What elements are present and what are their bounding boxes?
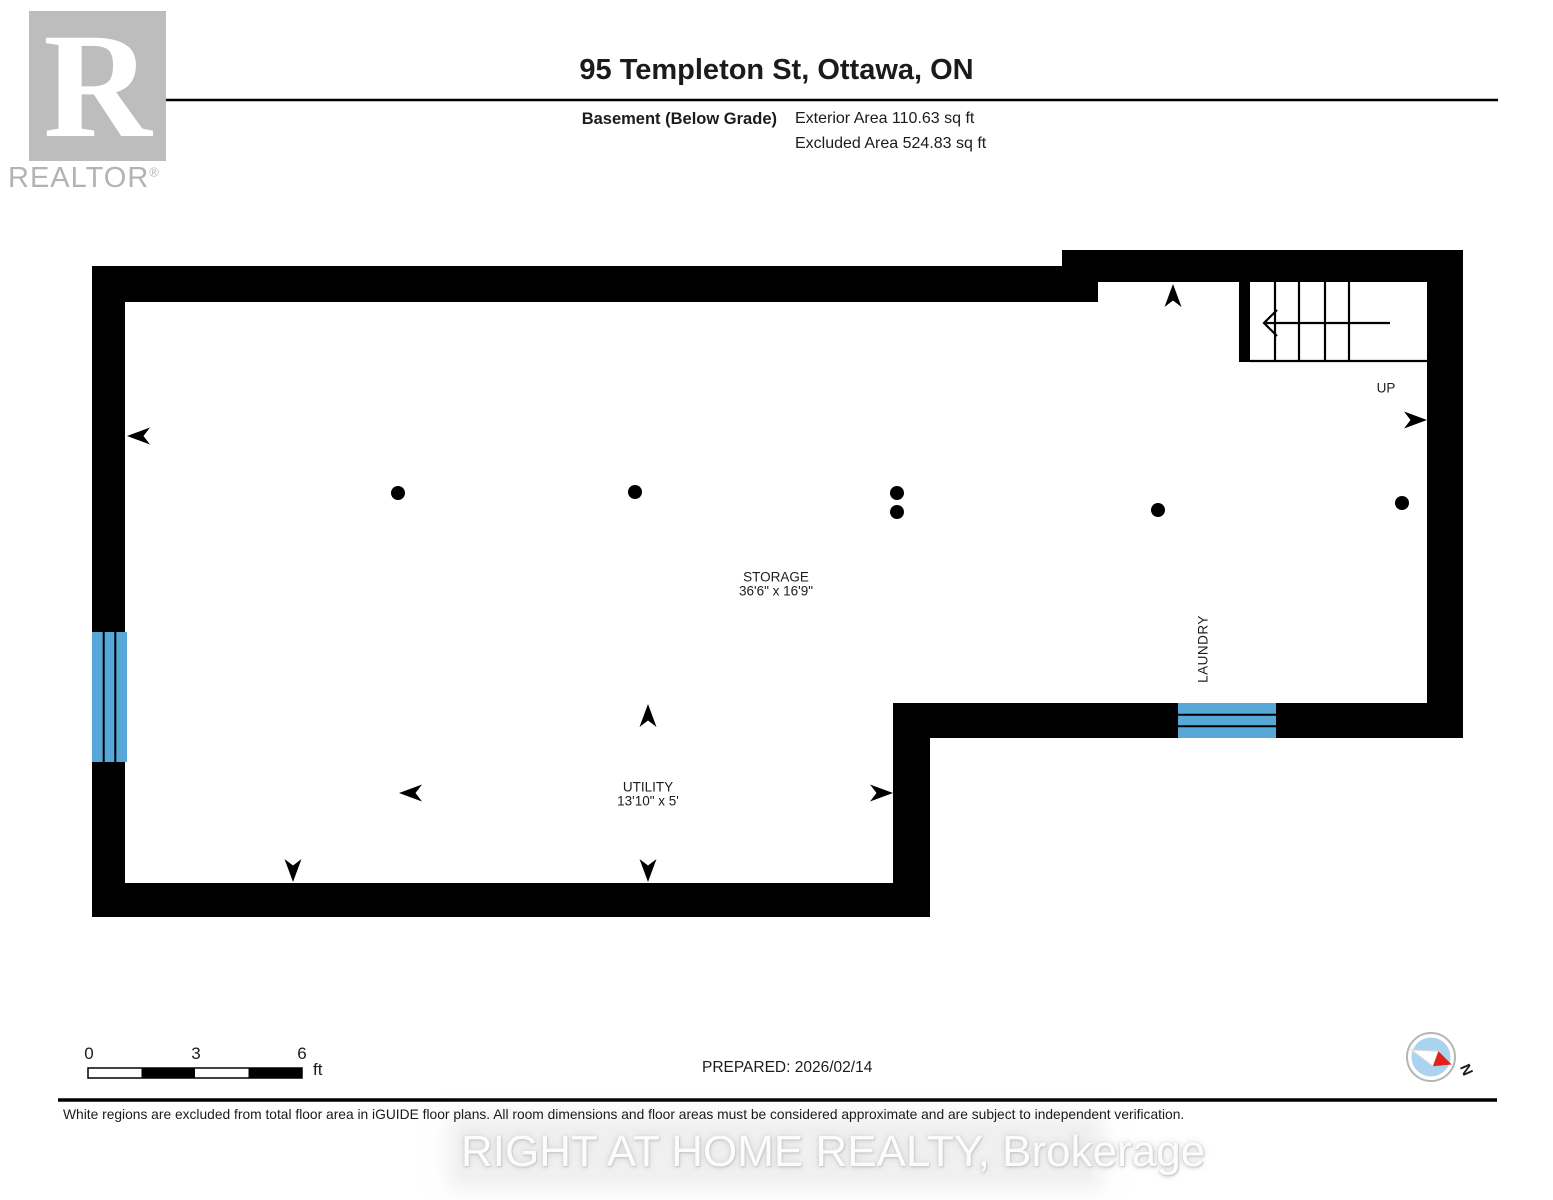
- post-dot: [1151, 503, 1165, 517]
- scale-tick-6: 6: [297, 1044, 306, 1064]
- room-dims-storage: 36'6" x 16'9": [739, 584, 813, 599]
- stairs-up-label: UP: [1377, 381, 1396, 396]
- room-label-storage: STORAGE: [743, 570, 809, 585]
- staircase: [1250, 282, 1427, 361]
- arrow-down-icon: [640, 859, 657, 882]
- window-glass: [1178, 703, 1276, 738]
- prepared-date: PREPARED: 2026/02/14: [702, 1059, 872, 1077]
- arrow-down-icon: [285, 859, 302, 882]
- post-dot: [628, 485, 642, 499]
- floor-plan-page: { "header": { "title": "95 Templeton St,…: [0, 0, 1553, 1200]
- stairwell-wall: [1239, 282, 1250, 362]
- realtor-wordmark-text: REALTOR: [8, 162, 149, 194]
- room-dims-utility: 13'10" x 5': [617, 794, 679, 809]
- post-dot: [1395, 496, 1409, 510]
- scale-bar: [88, 1068, 302, 1078]
- arrow-left-icon: [399, 785, 422, 802]
- scale-unit-label: ft: [313, 1060, 322, 1080]
- exterior-area-value: Exterior Area 110.63 sq ft: [795, 110, 974, 128]
- page-title: 95 Templeton St, Ottawa, ON: [0, 54, 1553, 87]
- excluded-area-value: Excluded Area 524.83 sq ft: [795, 135, 986, 153]
- disclaimer-text: White regions are excluded from total fl…: [63, 1107, 1184, 1122]
- scale-bar-segment: [249, 1068, 303, 1078]
- scale-tick-3: 3: [191, 1044, 200, 1064]
- brokerage-watermark: RIGHT AT HOME REALTY, Brokerage: [461, 1127, 1091, 1177]
- registered-symbol: ®: [149, 164, 160, 179]
- room-label-laundry: LAUNDRY: [1196, 615, 1211, 683]
- arrow-left-icon: [127, 428, 150, 445]
- floorplan-drawing: [0, 0, 1553, 1200]
- arrow-up-icon: [1165, 284, 1182, 307]
- post-dot: [391, 486, 405, 500]
- scale-bar-segment: [142, 1068, 196, 1078]
- compass-icon: [1407, 1033, 1455, 1081]
- arrow-right-icon: [870, 785, 893, 802]
- room-label-utility: UTILITY: [623, 780, 673, 795]
- realtor-wordmark: REALTOR®: [8, 162, 183, 195]
- post-dot: [890, 486, 904, 500]
- post-dot: [890, 505, 904, 519]
- window-glass: [92, 632, 127, 762]
- floor-label: Basement (Below Grade): [0, 110, 777, 129]
- stair-treads: [1275, 282, 1349, 361]
- arrow-right-icon: [1404, 412, 1427, 429]
- support-posts: [391, 485, 1409, 519]
- left-wall-window: [92, 632, 127, 762]
- arrow-up-icon: [640, 704, 657, 727]
- scale-tick-0: 0: [84, 1044, 93, 1064]
- laundry-window: [1178, 703, 1276, 738]
